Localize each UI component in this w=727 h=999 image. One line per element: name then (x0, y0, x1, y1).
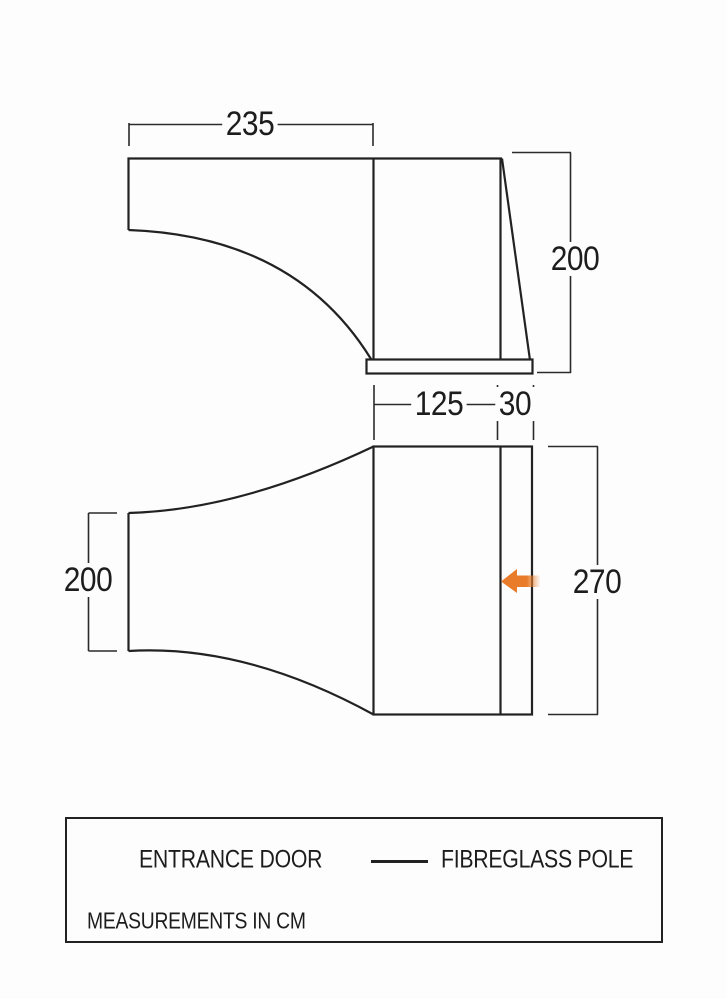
arrow-head (501, 569, 517, 593)
side-view-rear-slant-wall (502, 159, 532, 372)
dimension-label-side-width: 235 (222, 107, 278, 141)
plan-view (129, 447, 541, 715)
dimension-label-plan-depth: 270 (569, 565, 625, 599)
side-view (129, 159, 533, 374)
legend-entrance-door-label: ENTRANCE DOOR (139, 848, 322, 873)
dimension-label-side-height: 200 (547, 242, 603, 276)
dimension-label-plan-rear-width: 200 (60, 563, 116, 597)
dimension-label-plan-door-panel: 30 (495, 387, 534, 421)
fibreglass-pole-sample-line (371, 860, 428, 863)
arrow-tail (516, 576, 540, 588)
side-view-groundsheet-bar (367, 360, 533, 374)
dimension-label-plan-inner-width: 125 (411, 387, 467, 421)
side-view-outline (129, 159, 503, 231)
side-view-canopy-curve (129, 230, 372, 359)
plan-view-bottom-curve (129, 650, 374, 714)
entrance-door-arrow-icon (501, 569, 540, 593)
legend-measurements-note: MEASUREMENTS IN CM (87, 910, 306, 933)
legend-fibreglass-pole-label: FIBREGLASS POLE (441, 848, 633, 873)
tent-dimension-diagram: 235 200 125 30 200 270 ENTRANCE DOOR FIB… (0, 0, 727, 999)
plan-view-top-curve (129, 447, 374, 514)
